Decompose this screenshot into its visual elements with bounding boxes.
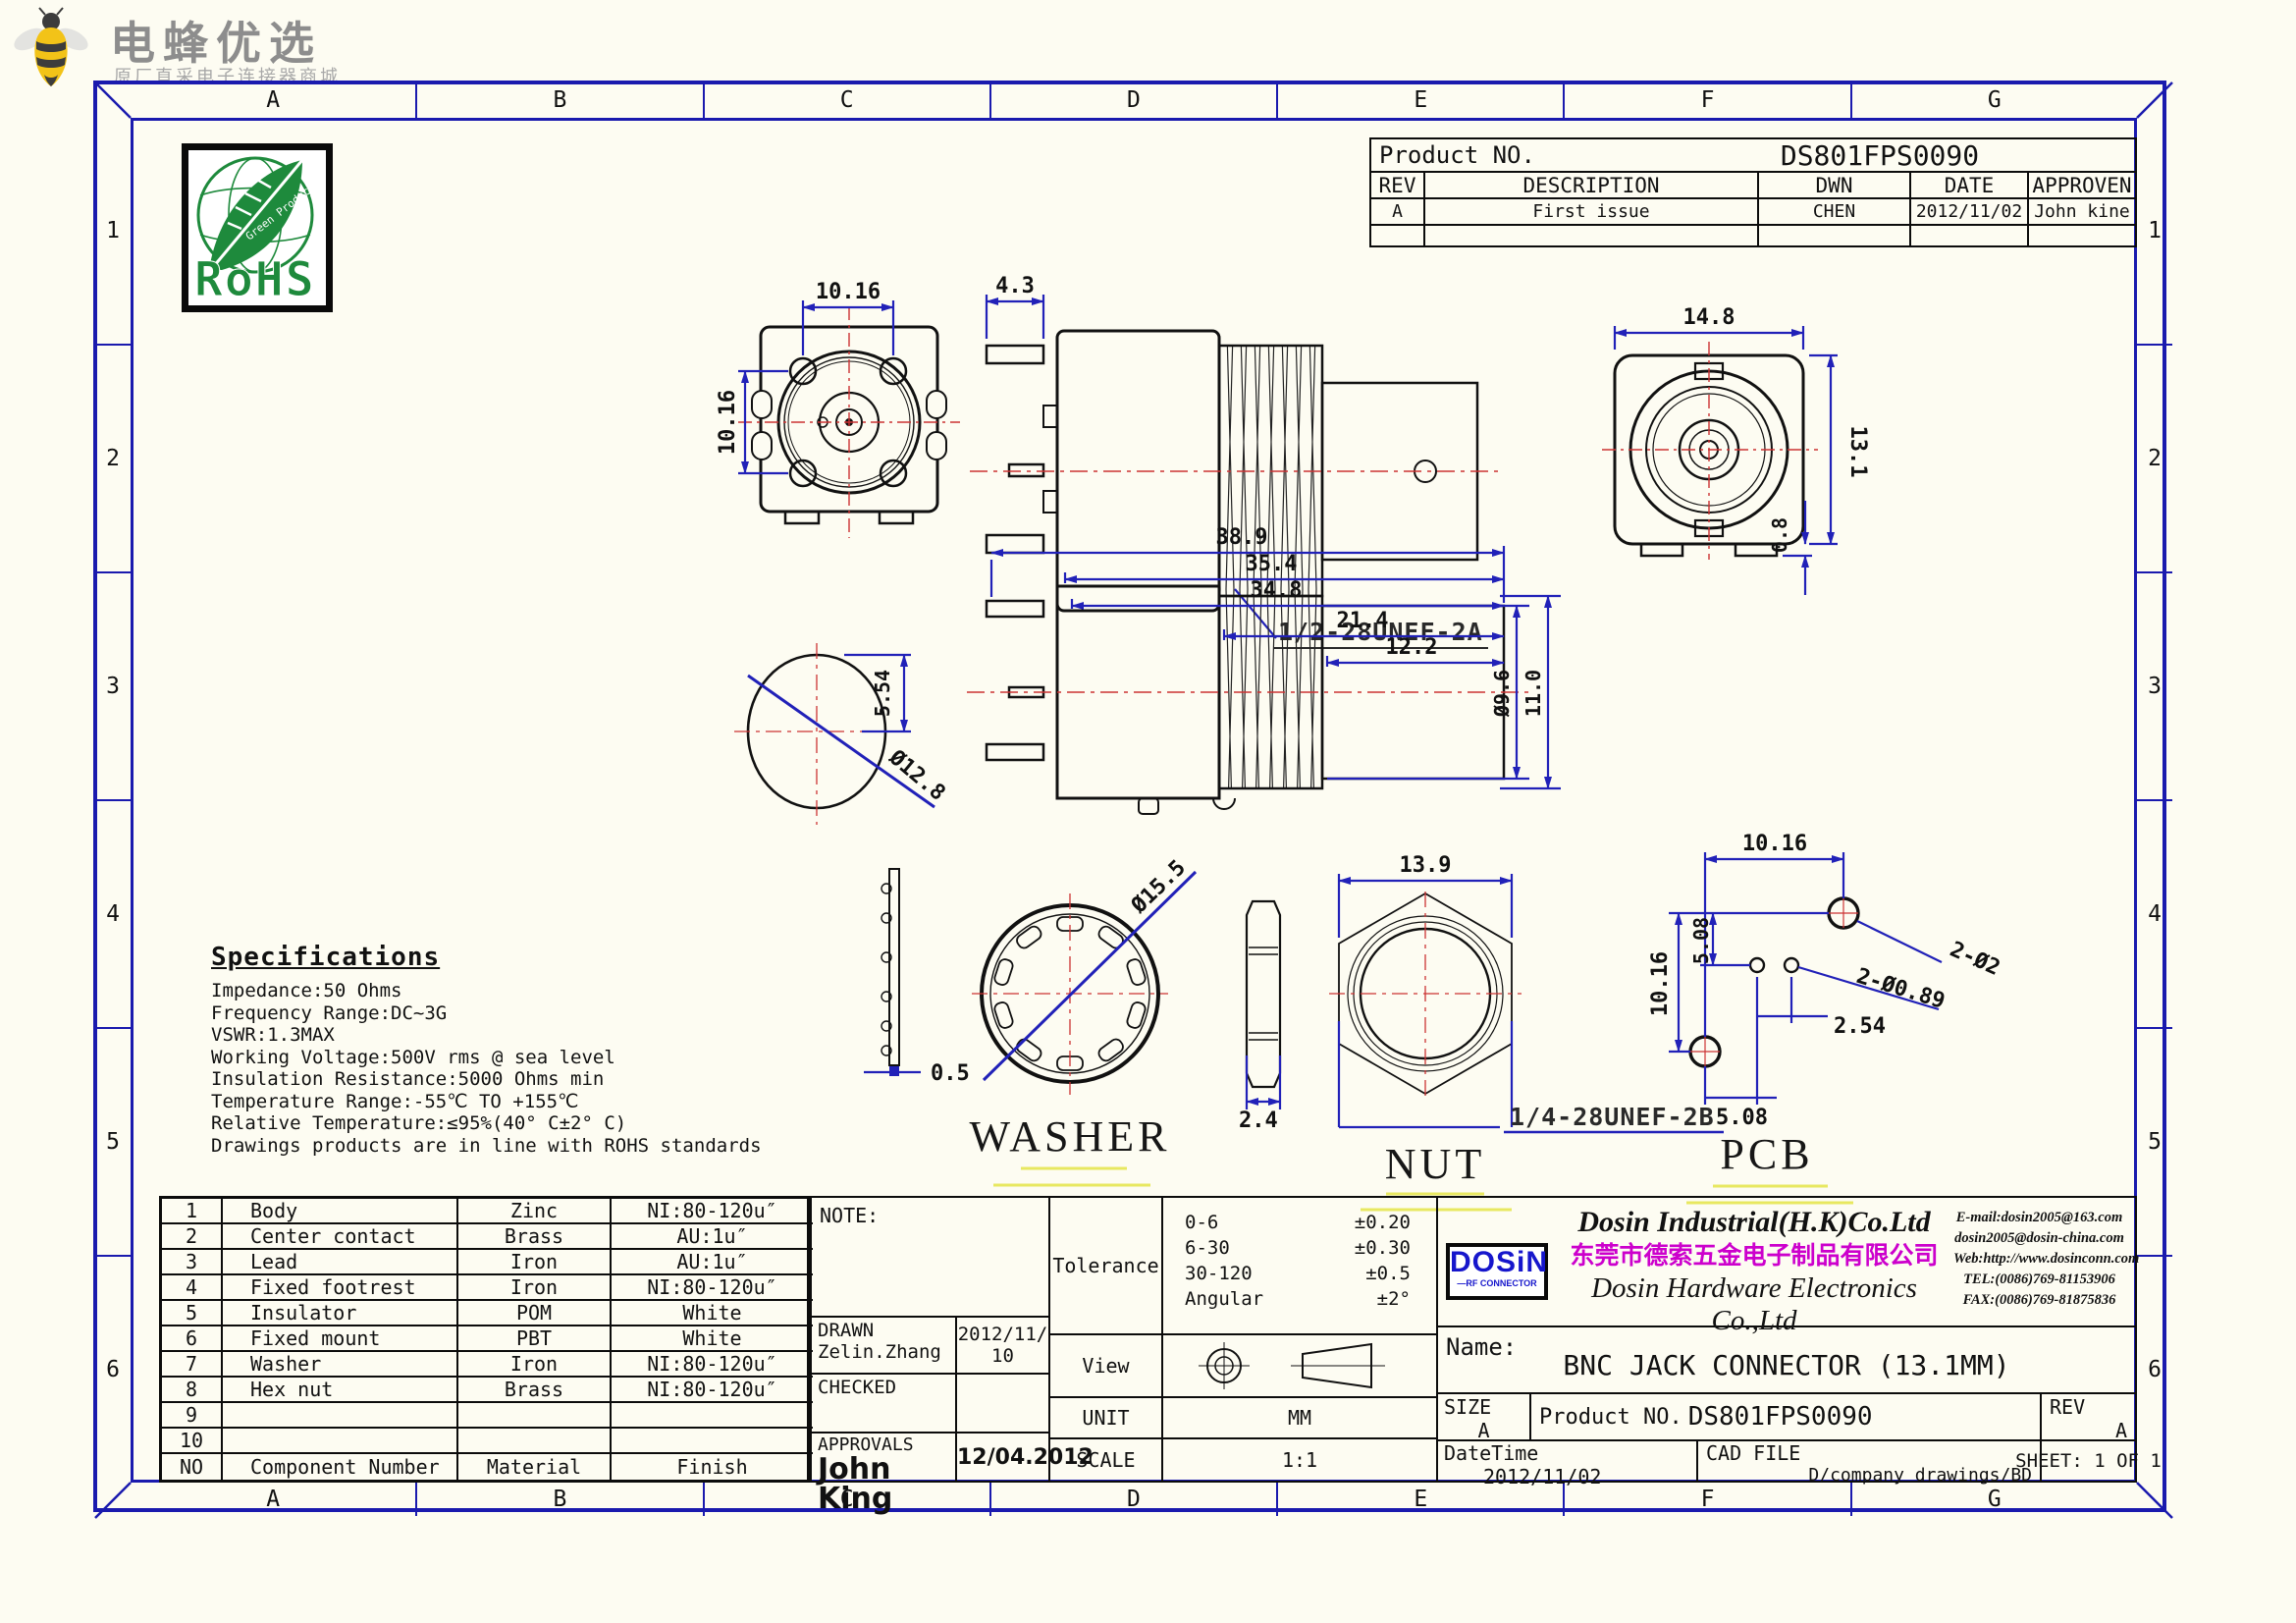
col-label: A bbox=[131, 1483, 417, 1516]
date-col-header: DATE bbox=[1909, 173, 2027, 199]
contact-line: TEL:(0086)769-81153906 bbox=[1953, 1270, 2125, 1290]
cadfile-label: CAD FILE bbox=[1706, 1441, 1800, 1465]
part-no: 2 bbox=[162, 1224, 223, 1250]
part-finish: NI:80-120u″ bbox=[612, 1378, 813, 1403]
part-component: Washer bbox=[223, 1352, 458, 1378]
tol-value: ±2° bbox=[1377, 1286, 1411, 1312]
col-label: C bbox=[705, 82, 991, 118]
checked-cell: CHECKED bbox=[810, 1375, 957, 1434]
part-material: Iron bbox=[458, 1352, 612, 1378]
rev-dwn: CHEN bbox=[1757, 199, 1909, 226]
frame-column-band-top: A B C D E F G bbox=[131, 82, 2137, 118]
dosin-logo-sub: —RF CONNECTOR bbox=[1450, 1278, 1544, 1288]
row-label: 6 bbox=[95, 1257, 131, 1483]
part-material bbox=[458, 1429, 612, 1454]
row-label: 3 bbox=[95, 573, 131, 801]
company-info-cell: DOSiN —RF CONNECTOR Dosin Industrial(H.K… bbox=[1438, 1196, 2137, 1327]
product-no-label: Product NO. bbox=[1369, 137, 1625, 173]
size-value: A bbox=[1444, 1419, 1523, 1442]
part-material: Brass bbox=[458, 1224, 612, 1250]
spec-line: Frequency Range:DC~3G bbox=[211, 1002, 682, 1025]
row-label: 2 bbox=[2137, 346, 2172, 573]
rev-label: REV bbox=[2050, 1395, 2127, 1419]
row-label: 1 bbox=[2137, 118, 2172, 346]
frame-column-band-bottom: A B C D E F G bbox=[131, 1483, 2137, 1516]
sheet-cell: SHEET: 1 OF 1 bbox=[2042, 1441, 2137, 1483]
part-material: PBT bbox=[458, 1326, 612, 1352]
part-component: Fixed mount bbox=[223, 1326, 458, 1352]
rev-value: A bbox=[1369, 199, 1423, 226]
dosin-logo-text: DOSiN bbox=[1450, 1247, 1544, 1278]
row-label: 5 bbox=[95, 1029, 131, 1257]
drawn-cell: DRAWN Zelin.Zhang bbox=[810, 1318, 957, 1375]
brand-logo: 电蜂优选 原厂直采电子连接器商城 bbox=[12, 6, 483, 88]
size-cell: SIZE A bbox=[1438, 1394, 1531, 1441]
rohs-text: RoHS bbox=[194, 252, 316, 305]
tol-value: ±0.5 bbox=[1365, 1261, 1411, 1286]
datetime-cell: DateTime 2012/11/02 bbox=[1438, 1441, 1698, 1483]
drawing-sheet: 电蜂优选 原厂直采电子连接器商城 A B C D E F G A B C D E… bbox=[0, 0, 2296, 1623]
part-material: Zinc bbox=[458, 1199, 612, 1224]
tol-range: Angular bbox=[1185, 1286, 1263, 1312]
dosin-logo: DOSiN —RF CONNECTOR bbox=[1446, 1243, 1548, 1300]
drawn-date-cell: 2012/11/10 bbox=[957, 1318, 1050, 1375]
datetime-value: 2012/11/02 bbox=[1444, 1465, 1690, 1488]
spec-line: Drawings products are in line with ROHS … bbox=[211, 1135, 682, 1158]
note-label: NOTE: bbox=[820, 1204, 879, 1227]
tol-range: 6-30 bbox=[1185, 1235, 1230, 1261]
row-label: 4 bbox=[2137, 801, 2172, 1029]
spec-line: Insulation Resistance:5000 Ohms min bbox=[211, 1068, 682, 1091]
third-angle-projection-icon bbox=[1187, 1339, 1413, 1392]
datetime-label: DateTime bbox=[1444, 1441, 1538, 1465]
col-label: B bbox=[417, 1483, 704, 1516]
part-component: Center contact bbox=[223, 1224, 458, 1250]
col-label: E bbox=[1278, 82, 1565, 118]
specifications-block: Specifications Impedance:50 Ohms Frequen… bbox=[211, 943, 682, 1157]
col-label: G bbox=[1852, 82, 2137, 118]
part-material: Iron bbox=[458, 1250, 612, 1275]
approvals-date-cell: 12/04.2012 bbox=[957, 1434, 1050, 1483]
rev-col-header: REV bbox=[1369, 173, 1423, 199]
contact-line: E-mail:dosin2005@163.com bbox=[1953, 1208, 2125, 1228]
company-name-cn: 东莞市德索五金电子制品有限公司 bbox=[1558, 1239, 1950, 1272]
note-cell: NOTE: bbox=[810, 1196, 1050, 1318]
part-no: 5 bbox=[162, 1301, 223, 1326]
cadfile-value: D/company drawings/BD bbox=[1706, 1465, 2032, 1486]
scale-label-cell: SCALE bbox=[1050, 1439, 1163, 1483]
part-finish bbox=[612, 1403, 813, 1429]
contact-line: dosin2005@dosin-china.com bbox=[1953, 1228, 2125, 1249]
product-name: BNC JACK CONNECTOR (13.1MM) bbox=[1438, 1349, 2135, 1381]
part-no: 6 bbox=[162, 1326, 223, 1352]
part-component: Insulator bbox=[223, 1301, 458, 1326]
row-label: 5 bbox=[2137, 1029, 2172, 1257]
company-contacts: E-mail:dosin2005@163.com dosin2005@dosin… bbox=[1953, 1208, 2125, 1311]
parts-header-component: Component Number bbox=[223, 1454, 458, 1480]
col-label: G bbox=[1852, 1483, 2137, 1516]
contact-line: Web:http://www.dosinconn.com bbox=[1953, 1249, 2125, 1270]
part-finish: NI:80-120u″ bbox=[612, 1352, 813, 1378]
scale-value-cell: 1:1 bbox=[1163, 1439, 1438, 1483]
rohs-logo: Green Product RoHS bbox=[182, 143, 333, 312]
col-label: B bbox=[417, 82, 704, 118]
parts-header-no: NO bbox=[162, 1454, 223, 1480]
spec-line: Impedance:50 Ohms bbox=[211, 980, 682, 1002]
part-component: Lead bbox=[223, 1250, 458, 1275]
part-component: Hex nut bbox=[223, 1378, 458, 1403]
part-component bbox=[223, 1429, 458, 1454]
row-label: 2 bbox=[95, 346, 131, 573]
part-finish: NI:80-120u″ bbox=[612, 1275, 813, 1301]
part-finish bbox=[612, 1429, 813, 1454]
part-material: POM bbox=[458, 1301, 612, 1326]
product-name-cell: Name: BNC JACK CONNECTOR (13.1MM) bbox=[1438, 1327, 2137, 1394]
unit-value-cell: MM bbox=[1163, 1398, 1438, 1439]
unit-label-cell: UNIT bbox=[1050, 1398, 1163, 1439]
part-component bbox=[223, 1403, 458, 1429]
spec-line: Temperature Range:-55℃ TO +155℃ bbox=[211, 1091, 682, 1113]
row-label: 4 bbox=[95, 801, 131, 1029]
row-label: 3 bbox=[2137, 573, 2172, 801]
part-no: 8 bbox=[162, 1378, 223, 1403]
view-label-cell: View bbox=[1050, 1335, 1163, 1398]
col-label: A bbox=[131, 82, 417, 118]
cadfile-cell: CAD FILE D/company drawings/BD bbox=[1698, 1441, 2042, 1483]
part-no: 3 bbox=[162, 1250, 223, 1275]
desc-col-header: DESCRIPTION bbox=[1423, 173, 1757, 199]
approven-col-header: APPROVEN bbox=[2027, 173, 2137, 199]
spec-line: Relative Temperature:≤95%(40° C±2° C) bbox=[211, 1112, 682, 1135]
tolerance-label-cell: Tolerance bbox=[1050, 1196, 1163, 1335]
part-no: 9 bbox=[162, 1403, 223, 1429]
frame-row-band-right: 1 2 3 4 5 6 bbox=[2137, 118, 2172, 1483]
rev-cell: REV A bbox=[2042, 1394, 2137, 1441]
specifications-title: Specifications bbox=[211, 943, 682, 972]
part-material: Brass bbox=[458, 1378, 612, 1403]
rev-approven: John kine bbox=[2027, 199, 2137, 226]
revision-table: Product NO. DS801FPS0090 REV DESCRIPTION… bbox=[1369, 137, 2137, 247]
part-no: 10 bbox=[162, 1429, 223, 1454]
parts-header-material: Material bbox=[458, 1454, 612, 1480]
rohs-leaf-icon: Green Product RoHS bbox=[188, 150, 326, 305]
part-no: 1 bbox=[162, 1199, 223, 1224]
tol-range: 0-6 bbox=[1185, 1210, 1218, 1235]
spec-line: Working Voltage:500V rms @ sea level bbox=[211, 1047, 682, 1069]
checked-label: CHECKED bbox=[818, 1377, 949, 1398]
tol-value: ±0.30 bbox=[1355, 1235, 1411, 1261]
part-no: 7 bbox=[162, 1352, 223, 1378]
part-finish: NI:80-120u″ bbox=[612, 1199, 813, 1224]
frame-row-band-left: 1 2 3 4 5 6 bbox=[95, 118, 131, 1483]
part-no: 4 bbox=[162, 1275, 223, 1301]
approvals-signature: John King bbox=[818, 1455, 911, 1514]
rev-date: 2012/11/02 bbox=[1909, 199, 2027, 226]
tol-range: 30-120 bbox=[1185, 1261, 1253, 1286]
company-name-en1: Dosin Industrial(H.K)Co.Ltd bbox=[1558, 1206, 1950, 1239]
drawn-name: Zelin.Zhang bbox=[818, 1341, 949, 1363]
col-label: D bbox=[991, 82, 1278, 118]
approvals-cell: APPROVALS John King bbox=[810, 1434, 957, 1483]
dwn-col-header: DWN bbox=[1757, 173, 1909, 199]
part-finish: White bbox=[612, 1326, 813, 1352]
part-material: Iron bbox=[458, 1275, 612, 1301]
product-no-cell: Product NO. DS801FPS0090 bbox=[1531, 1394, 2042, 1441]
col-label: F bbox=[1565, 82, 1851, 118]
row-label: 1 bbox=[95, 118, 131, 346]
part-finish: White bbox=[612, 1301, 813, 1326]
tol-value: ±0.20 bbox=[1355, 1210, 1411, 1235]
product-no-value: DS801FPS0090 bbox=[1625, 137, 2137, 173]
rev-description: First issue bbox=[1423, 199, 1757, 226]
part-finish: AU:1u″ bbox=[612, 1224, 813, 1250]
part-material bbox=[458, 1403, 612, 1429]
parts-table: 1 Body Zinc NI:80-120u″ 2 Center contact… bbox=[159, 1196, 810, 1483]
product-no-label2: Product NO. bbox=[1539, 1405, 1682, 1430]
part-finish: AU:1u″ bbox=[612, 1250, 813, 1275]
rev-value2: A bbox=[2050, 1419, 2127, 1442]
part-component: Fixed footrest bbox=[223, 1275, 458, 1301]
contact-line: FAX:(0086)769-81875836 bbox=[1953, 1290, 2125, 1311]
checked-value-cell bbox=[957, 1375, 1050, 1434]
spec-line: VSWR:1.3MAX bbox=[211, 1024, 682, 1047]
drawn-label: DRAWN bbox=[818, 1320, 949, 1341]
row-label: 6 bbox=[2137, 1257, 2172, 1483]
product-no-value2: DS801FPS0090 bbox=[1688, 1402, 1873, 1432]
parts-header-finish: Finish bbox=[612, 1454, 813, 1480]
part-component: Body bbox=[223, 1199, 458, 1224]
size-label: SIZE bbox=[1444, 1395, 1523, 1419]
bee-icon bbox=[12, 6, 100, 88]
tolerance-values-cell: 0-6±0.20 6-30±0.30 30-120±0.5 Angular±2° bbox=[1163, 1196, 1438, 1335]
view-symbol-cell bbox=[1163, 1335, 1438, 1398]
col-label: D bbox=[991, 1483, 1278, 1516]
